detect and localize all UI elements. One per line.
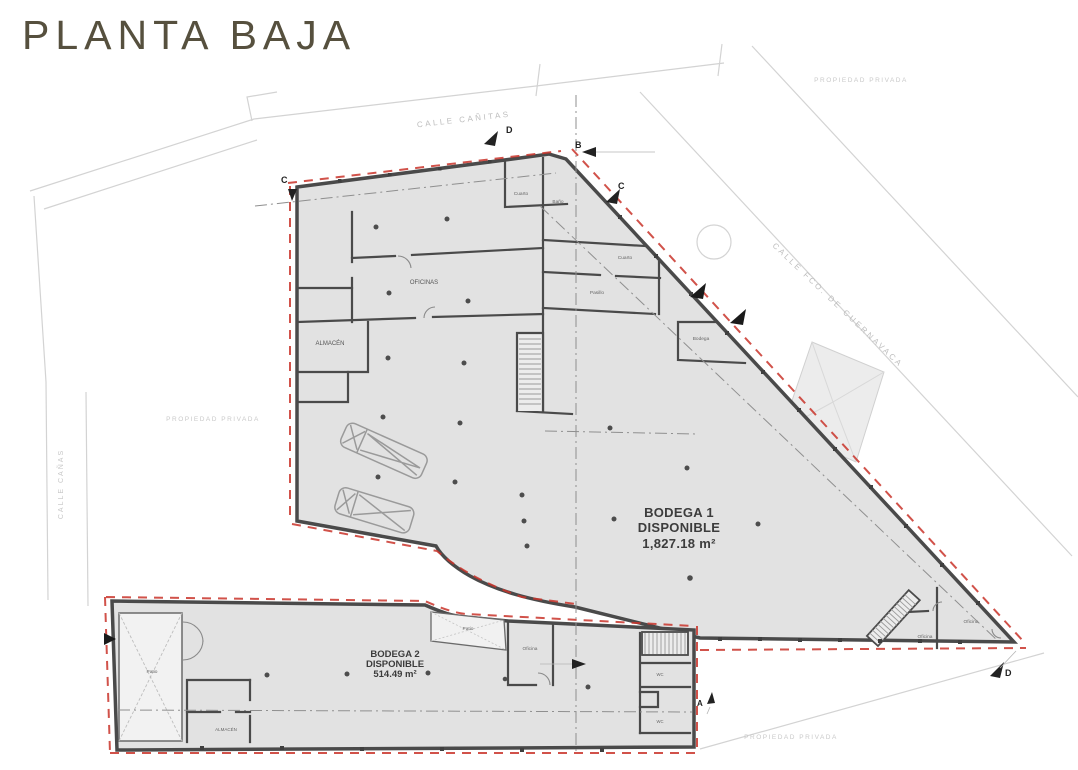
street-label-top: CALLE CAÑITAS	[416, 110, 511, 130]
bodega1-area: 1,827.18 m²	[642, 536, 716, 551]
room-label-bodega-small: Bodega	[693, 336, 710, 342]
entry-arrow-diagonal-2	[730, 309, 746, 325]
floor-plan-svg: CALLE CAÑITAS CALLE CAÑAS CALLE FCO. DE …	[0, 0, 1078, 770]
bodega2-unit: Patio Patio	[112, 601, 694, 752]
note-private-bottom: PROPIEDAD PRIVADA	[744, 734, 838, 741]
street-edge-top-inner	[44, 140, 257, 209]
street-label-right: CALLE FCO. DE CUERNAVACA	[771, 241, 905, 369]
leader-d-bottom	[1000, 651, 1016, 668]
note-private-top-right: PROPIEDAD PRIVADA	[814, 77, 908, 84]
street-label-left: CALLE CAÑAS	[56, 449, 65, 519]
stair-central	[517, 333, 543, 411]
marker-d-top: D	[506, 125, 513, 135]
street-ticks-top	[536, 44, 722, 96]
bodega1-unit: OFICINAS ALMACÉN Cuarto Baño Cuarto Pasi…	[297, 154, 1014, 648]
section-arrow-c-top	[606, 189, 620, 204]
leader-a	[707, 707, 710, 714]
room-label-oficina-left: Oficina	[918, 634, 933, 640]
note-private-left: PROPIEDAD PRIVADA	[166, 416, 260, 423]
section-arrow-d-bottom	[990, 662, 1004, 678]
bodega1-title-block: BODEGA 1 DISPONIBLE 1,827.18 m²	[638, 505, 720, 551]
street-edge-right-outer	[752, 46, 1078, 397]
room-label-patio-mid: Patio	[463, 626, 474, 632]
room-label-oficina-b2: Oficina	[523, 646, 538, 652]
street-edge-left	[34, 196, 88, 606]
section-arrow-d-top	[484, 131, 498, 146]
bodega2-area: 514.49 m²	[373, 669, 416, 680]
marker-d-bottom: D	[1005, 668, 1012, 678]
room-label-almacen: ALMACÉN	[315, 340, 344, 347]
marker-b-top: B	[575, 140, 582, 150]
stair-bodega2	[642, 632, 688, 655]
room-label-wc-lower: WC	[657, 719, 664, 724]
room-label-cuarto-mid: Cuarto	[618, 255, 633, 261]
bodega1-floor	[297, 154, 1014, 642]
room-label-wc-upper: WC	[657, 672, 664, 677]
room-label-patio-left: Patio	[147, 669, 158, 675]
marker-a-bottom: A	[697, 699, 703, 708]
bodega2-patio-left: Patio	[119, 613, 182, 741]
marker-c-top: C	[618, 181, 625, 191]
section-arrow-a-bottom	[707, 692, 715, 704]
bodega2-title-block: BODEGA 2 DISPONIBLE 514.49 m²	[366, 649, 424, 680]
section-arrow-b-top	[582, 147, 596, 157]
room-label-almacen-b2: ALMACÉN	[215, 726, 237, 732]
marker-c-left: C	[281, 175, 288, 185]
room-label-cuarto-top: Cuarto	[514, 191, 529, 197]
bodega1-status: DISPONIBLE	[638, 520, 720, 535]
entry-arrow-diagonal-1	[690, 283, 706, 299]
bodega1-name: BODEGA 1	[644, 505, 714, 520]
floor-plan-page: PLANTA BAJA CALLE CAÑITAS CALLE CAÑAS CA…	[0, 0, 1078, 770]
room-label-pasillo: Pasillo	[590, 290, 604, 296]
room-label-oficinas: OFICINAS	[410, 280, 438, 286]
street-turning-circle	[697, 225, 731, 259]
street-edge-top	[30, 63, 724, 191]
room-label-bano: Baño	[552, 199, 564, 205]
